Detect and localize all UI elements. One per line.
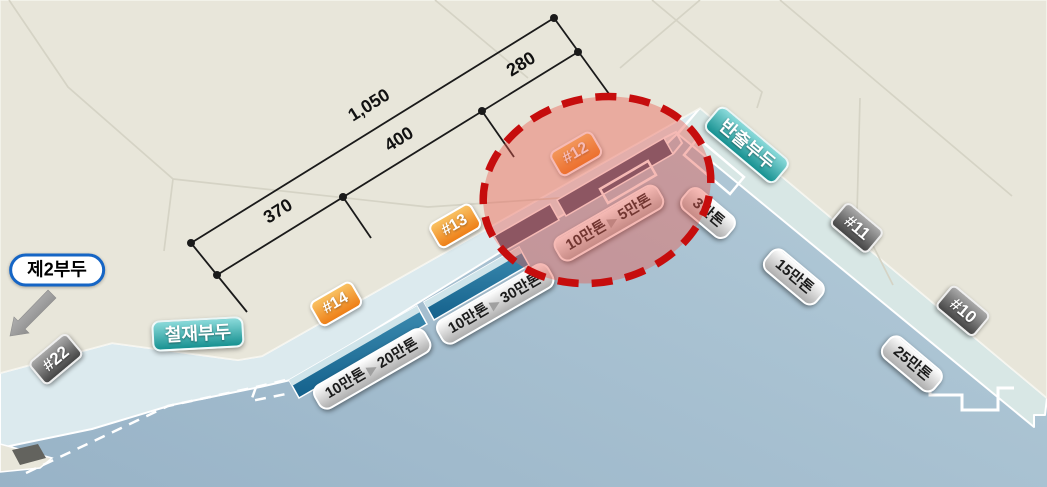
capacity-pill-berth14: 10만톤▶20만톤	[309, 325, 434, 414]
tonnage-pill-25: 25만톤	[877, 331, 947, 396]
berth-tag-13: #13	[427, 201, 484, 250]
capacity-from: 10만톤	[563, 217, 610, 254]
capacity-pill-berth12: 10만톤▶5만톤	[550, 181, 668, 265]
berth-tag-10: #10	[934, 283, 992, 338]
capacity-from: 10만톤	[322, 365, 369, 402]
port-berth-map: 1,050 370 400 280 제2부두 철재부두 반출부두 #22 #14…	[0, 0, 1047, 487]
tonnage-pill-15: 15만톤	[759, 244, 829, 309]
capacity-to: 30만톤	[497, 270, 544, 307]
capacity-pill-berth13: 10만톤▶30만톤	[432, 260, 557, 349]
steel-pier-label: 철재부두	[151, 316, 245, 352]
berth-tag-12: #12	[548, 129, 605, 178]
capacity-from: 10만톤	[445, 300, 492, 337]
tonnage-pill-3: 3만톤	[676, 183, 740, 243]
capacity-to: 20만톤	[374, 335, 421, 372]
map-labels: 제2부두 철재부두 반출부두 #22 #14 #13 #12 #11 #10 1…	[0, 0, 1047, 487]
berth-tag-11: #11	[828, 201, 885, 256]
pier2-label: 제2부두	[9, 254, 105, 287]
capacity-to: 5만톤	[615, 191, 655, 224]
carryout-pier-label: 반출부두	[702, 103, 793, 186]
berth-tag-22: #22	[27, 331, 85, 386]
berth-tag-14: #14	[308, 279, 365, 328]
